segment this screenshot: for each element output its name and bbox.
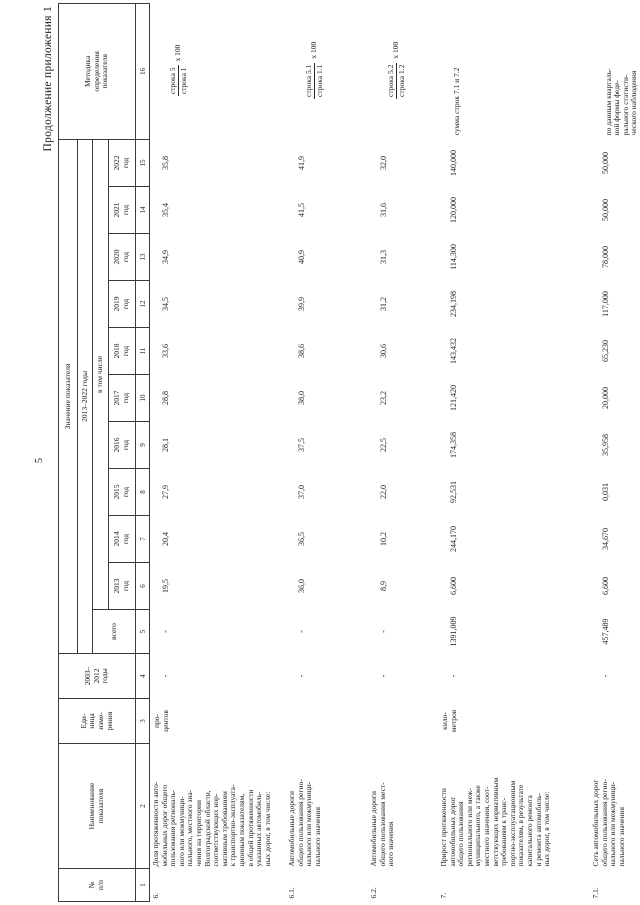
col-number: 1: [136, 869, 150, 902]
col-number: 15: [136, 139, 150, 186]
fraction-denominator: строка 1: [179, 65, 189, 96]
header-unit: Еди- ница изме- рения: [59, 699, 136, 744]
value-cell: 35,8: [150, 139, 287, 186]
value-cell: 33,6: [150, 328, 287, 375]
value-cell: 114,300: [438, 234, 590, 281]
value-cell: 28,1: [150, 422, 287, 469]
value-cell: -: [286, 654, 368, 699]
indicator-name: Прирост протяженности автомобильных доро…: [438, 744, 590, 869]
value-cell: 20,4: [150, 516, 287, 563]
methodology-cell: строка 5 строка 1 х 100: [150, 3, 287, 139]
value-cell: 19,5: [150, 563, 287, 610]
header-year-2015: 2015 год: [109, 469, 136, 516]
value-cell: 34,9: [150, 234, 287, 281]
methodology-cell: строка 5.2 строка 1.2 х 100: [368, 3, 438, 139]
value-cell: 30,6: [368, 328, 438, 375]
fraction-numerator: строка 5.1: [305, 63, 316, 99]
header-year-2018: 2018 год: [109, 328, 136, 375]
value-cell: -: [368, 610, 438, 654]
value-cell: 20,000: [590, 375, 640, 422]
col-number: 16: [136, 3, 150, 139]
column-number-row: 1 2 3 4 5 6 7 8 9 10 11 12 13 14 15 16: [136, 3, 150, 901]
fraction-suffix: х 100: [310, 42, 319, 59]
value-cell: 234,198: [438, 281, 590, 328]
value-cell: 92,531: [438, 469, 590, 516]
page-number: 5: [34, 458, 45, 463]
header-including: в том числе: [93, 139, 109, 609]
value-cell: 244,170: [438, 516, 590, 563]
value-cell: 36,0: [286, 563, 368, 610]
value-cell: 34,5: [150, 281, 287, 328]
value-cell: 37,5: [286, 422, 368, 469]
unit-cell: кило- метров: [438, 699, 590, 744]
value-cell: 40,9: [286, 234, 368, 281]
value-cell: 36,5: [286, 516, 368, 563]
methodology-cell: строка 5.1 строка 1.1 х 100: [286, 3, 368, 139]
row-number: 6.2.: [368, 869, 438, 902]
header-year-2019: 2019 год: [109, 281, 136, 328]
value-cell: 34,670: [590, 516, 640, 563]
indicators-table: № п/п Наименование показателя Еди- ница …: [58, 3, 640, 902]
value-cell: 6,600: [438, 563, 590, 610]
value-cell: 32,0: [368, 139, 438, 186]
value-cell: 35,4: [150, 187, 287, 234]
value-cell: 10,2: [368, 516, 438, 563]
value-cell: 31,6: [368, 187, 438, 234]
value-cell: -: [286, 610, 368, 654]
value-cell: 31,3: [368, 234, 438, 281]
fraction: строка 5.1 строка 1.1: [305, 63, 325, 99]
value-cell: 65,230: [590, 328, 640, 375]
fraction-denominator: строка 1.2: [397, 63, 407, 99]
header-year-2020: 2020 год: [109, 234, 136, 281]
header-methodology: Методика определения показателя: [59, 3, 136, 139]
value-cell: 8,9: [368, 563, 438, 610]
col-number: 5: [136, 610, 150, 654]
value-cell: 50,000: [590, 187, 640, 234]
fraction-suffix: х 100: [392, 42, 401, 59]
fraction: строка 5.2 строка 1.2: [387, 63, 407, 99]
indicator-name: Сеть автомобильных дорог общего пользова…: [590, 744, 640, 869]
header-row-1: № п/п Наименование показателя Еди- ница …: [59, 3, 78, 901]
row-number: 6.: [150, 869, 287, 902]
value-cell: 1391,009: [438, 610, 590, 654]
value-cell: 6,600: [590, 563, 640, 610]
scanned-page: Продолжение приложения 1 5 № п/п Наимено…: [0, 0, 640, 905]
col-number: 10: [136, 375, 150, 422]
col-number: 8: [136, 469, 150, 516]
header-no: № п/п: [59, 869, 136, 902]
value-cell: 143,432: [438, 328, 590, 375]
value-cell: 121,420: [438, 375, 590, 422]
methodology-text: по данным кварталь- ной формы феде- раль…: [605, 5, 640, 135]
col-number: 2: [136, 744, 150, 869]
fraction-denominator: строка 1.1: [315, 63, 325, 99]
value-cell: 38,0: [286, 375, 368, 422]
indicator-name: Автомобильные дороги общего пользования …: [286, 744, 368, 869]
value-cell: 140,000: [438, 139, 590, 186]
col-number: 11: [136, 328, 150, 375]
value-cell: 117,000: [590, 281, 640, 328]
value-cell: 41,5: [286, 187, 368, 234]
continuation-label: Продолжение приложения 1: [42, 6, 54, 151]
value-cell: 23,2: [368, 375, 438, 422]
fraction-suffix: х 100: [174, 45, 183, 62]
methodology-text: сумма строк 7.1 и 7.2: [453, 5, 462, 135]
table-row: 6.2. Автомобильные дороги общего пользов…: [368, 3, 438, 901]
value-cell: 120,000: [438, 187, 590, 234]
row-number: 6.1.: [286, 869, 368, 902]
formula: строка 5.2 строка 1.2 х 100: [383, 5, 407, 135]
value-cell: -: [150, 654, 287, 699]
value-cell: 38,6: [286, 328, 368, 375]
indicator-name: Автомобильные дороги общего пользования …: [368, 744, 438, 869]
col-number: 9: [136, 422, 150, 469]
header-year-2022: 2022 год: [109, 139, 136, 186]
value-cell: 0,031: [590, 469, 640, 516]
methodology-cell: по данным кварталь- ной формы феде- раль…: [590, 3, 640, 139]
col-number: 6: [136, 563, 150, 610]
formula: строка 5.1 строка 1.1 х 100: [301, 5, 325, 135]
value-cell: 50,000: [590, 139, 640, 186]
value-cell: 35,958: [590, 422, 640, 469]
value-cell: 31,2: [368, 281, 438, 328]
fraction-numerator: строка 5.2: [387, 63, 398, 99]
header-name: Наименование показателя: [59, 744, 136, 869]
document-page: Продолжение приложения 1 5 № п/п Наимено…: [0, 0, 640, 905]
col-number: 14: [136, 187, 150, 234]
value-cell: 22,5: [368, 422, 438, 469]
value-cell: 41,9: [286, 139, 368, 186]
value-cell: 28,8: [150, 375, 287, 422]
header-year-2013: 2013 год: [109, 563, 136, 610]
unit-cell: [368, 699, 438, 744]
table-row: 6.1. Автомобильные дороги общего пользов…: [286, 3, 368, 901]
value-cell: 37,0: [286, 469, 368, 516]
col-number: 4: [136, 654, 150, 699]
header-value-group: Значение показателя: [59, 139, 78, 653]
header-year-2017: 2017 год: [109, 375, 136, 422]
col-number: 3: [136, 699, 150, 744]
col-number: 7: [136, 516, 150, 563]
indicator-name: Доля протяженности авто- мобильных дорог…: [150, 744, 287, 869]
value-cell: 22,0: [368, 469, 438, 516]
value-cell: 27,9: [150, 469, 287, 516]
value-cell: 457,489: [590, 610, 640, 654]
fraction: строка 5 строка 1: [169, 65, 189, 96]
table-row: 6. Доля протяженности авто- мобильных до…: [150, 3, 287, 901]
header-year-2014: 2014 год: [109, 516, 136, 563]
header-year-2016: 2016 год: [109, 422, 136, 469]
value-cell: -: [368, 654, 438, 699]
row-number: 7.1.: [590, 869, 640, 902]
col-number: 12: [136, 281, 150, 328]
unit-cell: [590, 699, 640, 744]
col-number: 13: [136, 234, 150, 281]
value-cell: 174,358: [438, 422, 590, 469]
formula: строка 5 строка 1 х 100: [165, 5, 189, 135]
fraction-numerator: строка 5: [169, 65, 180, 96]
row-number: 7.: [438, 869, 590, 902]
value-cell: -: [590, 654, 640, 699]
value-cell: -: [438, 654, 590, 699]
header-total: всего: [93, 610, 136, 654]
unit-cell: про- центов: [150, 699, 287, 744]
value-cell: -: [150, 610, 287, 654]
unit-cell: [286, 699, 368, 744]
header-period-2003-2012: 2003– 2012 годы: [59, 654, 136, 699]
value-cell: 39,9: [286, 281, 368, 328]
value-cell: 78,000: [590, 234, 640, 281]
table-row: 7. Прирост протяженности автомобильных д…: [438, 3, 590, 901]
methodology-cell: сумма строк 7.1 и 7.2: [438, 3, 590, 139]
table-row: 7.1. Сеть автомобильных дорог общего пол…: [590, 3, 640, 901]
header-period-2013-2022: 2013–2022 годы: [78, 139, 93, 653]
header-year-2021: 2021 год: [109, 187, 136, 234]
